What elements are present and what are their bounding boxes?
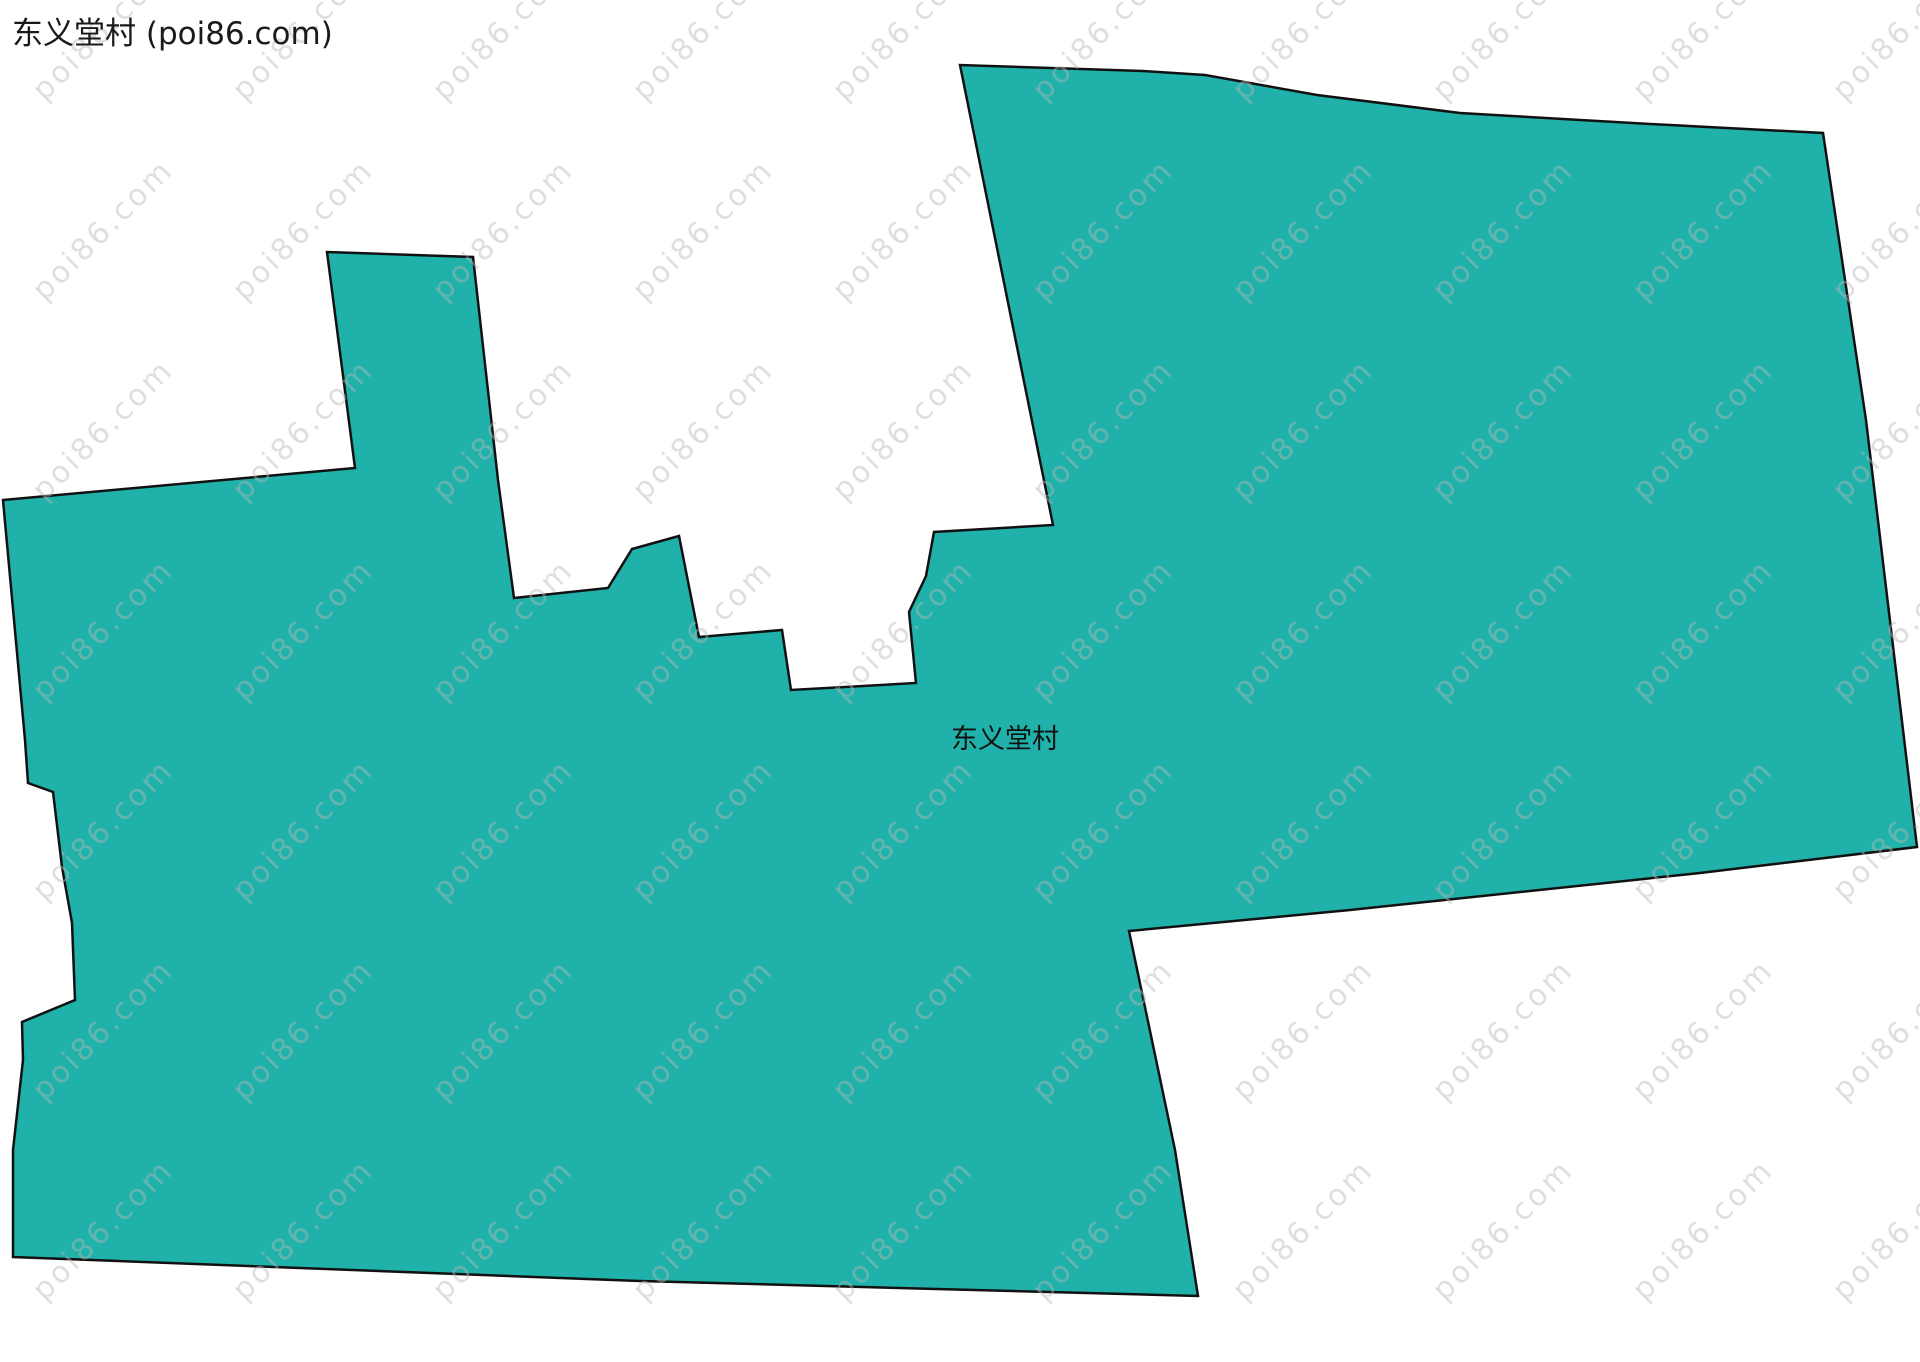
map-canvas (0, 0, 1920, 1362)
village-label: 东义堂村 (951, 717, 1059, 756)
map-page: poi86.compoi86.compoi86.compoi86.compoi8… (0, 0, 1920, 1362)
village-boundary-polygon (3, 65, 1917, 1296)
page-title: 东义堂村 (poi86.com) (12, 8, 333, 53)
